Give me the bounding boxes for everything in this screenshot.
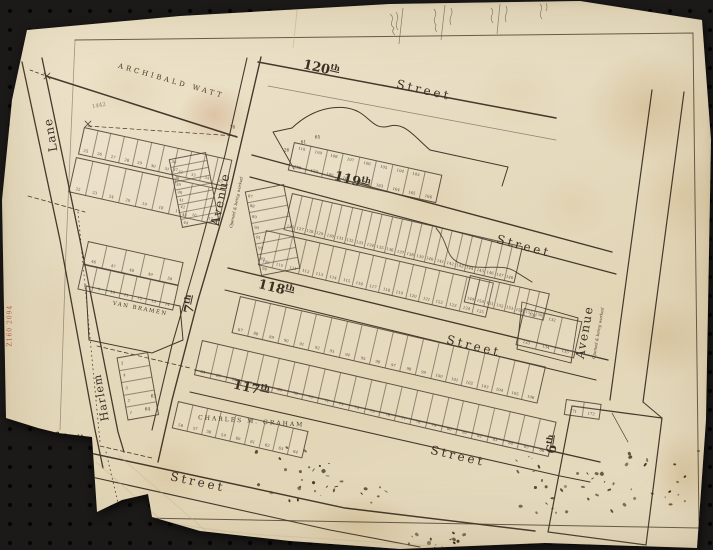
dashed-118th-west [28, 196, 85, 212]
street-line-116th-south [42, 466, 420, 547]
catalog-number: Z160 2094 [7, 287, 14, 347]
sixth-avenue-west-line [610, 90, 652, 400]
watt-boundary-line [46, 76, 237, 137]
sixth-avenue-east-line [643, 92, 684, 402]
sixth-avenue-block-outline [548, 406, 662, 545]
pointer-line [612, 413, 628, 442]
pencil-notes [390, 3, 547, 44]
dotted-116th-south [106, 452, 122, 520]
map-border-left [60, 40, 75, 430]
map-sheet: 2526272829303132333435 22232420191817161… [0, 0, 713, 550]
scan-background: 2526272829303132333435 22232420191817161… [0, 0, 713, 550]
